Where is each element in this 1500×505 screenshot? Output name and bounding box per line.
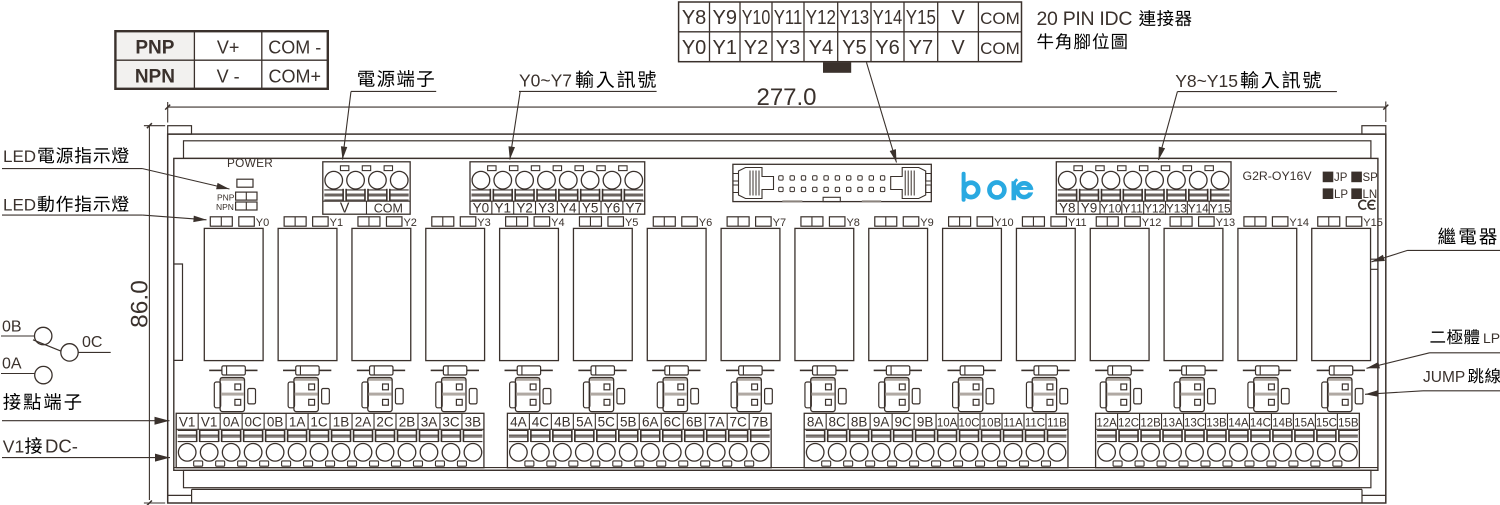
svg-text:86.0: 86.0: [127, 280, 154, 328]
svg-text:G2R-OY16V: G2R-OY16V: [1243, 169, 1313, 183]
svg-text:Y3: Y3: [477, 217, 490, 229]
svg-text:Y4: Y4: [809, 37, 833, 59]
svg-text:4C: 4C: [532, 414, 550, 429]
svg-text:NPN: NPN: [135, 67, 175, 88]
svg-text:2A: 2A: [355, 414, 372, 429]
svg-text:COM: COM: [374, 202, 403, 216]
svg-text:15B: 15B: [1338, 417, 1359, 429]
svg-text:Y6: Y6: [699, 217, 712, 229]
svg-text:9B: 9B: [917, 414, 934, 429]
svg-text:7A: 7A: [708, 414, 725, 429]
svg-text:8C: 8C: [829, 414, 847, 429]
svg-text:SP: SP: [1363, 172, 1379, 184]
svg-text:11A: 11A: [1003, 417, 1023, 429]
svg-text:7B: 7B: [752, 414, 769, 429]
svg-text:Y0: Y0: [256, 217, 269, 229]
svg-text:12A: 12A: [1096, 417, 1117, 429]
svg-text:Y5: Y5: [625, 217, 638, 229]
svg-text:Y12: Y12: [1144, 202, 1165, 216]
svg-text:Y9: Y9: [920, 217, 933, 229]
svg-text:LED: LED: [3, 147, 36, 166]
svg-text:V1: V1: [179, 414, 196, 429]
svg-text:Y8: Y8: [846, 217, 859, 229]
svg-text:Y1: Y1: [330, 217, 343, 229]
svg-text:5B: 5B: [620, 414, 637, 429]
svg-text:V+: V+: [217, 38, 240, 58]
svg-text:Y0: Y0: [473, 201, 490, 216]
svg-text:11C: 11C: [1025, 417, 1045, 429]
svg-text:10B: 10B: [981, 417, 1002, 429]
svg-text:V -: V -: [217, 67, 240, 87]
svg-text:Y15: Y15: [906, 7, 936, 29]
svg-text:Y3: Y3: [538, 201, 555, 216]
svg-text:10C: 10C: [958, 417, 979, 429]
svg-text:Y5: Y5: [582, 201, 599, 216]
svg-text:3B: 3B: [465, 414, 482, 429]
svg-text:Y12: Y12: [806, 7, 836, 29]
svg-text:1B: 1B: [333, 414, 350, 429]
svg-text:V: V: [340, 201, 350, 217]
svg-text:1C: 1C: [310, 414, 328, 429]
svg-text:15C: 15C: [1316, 417, 1337, 429]
svg-text:12B: 12B: [1140, 417, 1161, 429]
svg-text:Y10: Y10: [1100, 202, 1121, 216]
svg-text:Y0~Y7: Y0~Y7: [519, 71, 572, 91]
svg-text:5C: 5C: [598, 414, 616, 429]
svg-text:JP: JP: [1334, 172, 1348, 184]
svg-text:Y14: Y14: [873, 7, 903, 29]
svg-text:Y0: Y0: [682, 37, 706, 59]
svg-text:NPN: NPN: [216, 202, 234, 212]
svg-text:6B: 6B: [686, 414, 703, 429]
svg-text:14C: 14C: [1250, 417, 1271, 429]
svg-text:COM -: COM -: [268, 38, 321, 58]
svg-text:15A: 15A: [1294, 417, 1315, 429]
svg-text:Y6: Y6: [604, 201, 621, 216]
svg-text:Y14: Y14: [1289, 217, 1309, 229]
svg-text:Y13: Y13: [839, 7, 869, 29]
svg-text:3A: 3A: [421, 414, 438, 429]
svg-text:COM: COM: [980, 39, 1020, 58]
svg-text:8A: 8A: [807, 414, 824, 429]
svg-text:2C: 2C: [376, 414, 394, 429]
svg-text:Y4: Y4: [560, 201, 577, 216]
svg-text:Y11: Y11: [1123, 202, 1143, 216]
svg-text:LED: LED: [3, 196, 36, 215]
svg-text:Y9: Y9: [713, 7, 737, 29]
svg-text:Y10: Y10: [994, 217, 1014, 229]
svg-text:0C: 0C: [82, 334, 102, 351]
svg-text:Y11: Y11: [1068, 217, 1087, 229]
svg-text:Y7: Y7: [773, 217, 786, 229]
svg-text:Y14: Y14: [1188, 202, 1209, 216]
svg-text:Y12: Y12: [1142, 217, 1162, 229]
svg-text:Y10: Y10: [742, 7, 771, 29]
svg-text:Y8: Y8: [682, 7, 706, 29]
svg-text:COM: COM: [980, 9, 1020, 28]
svg-text:Y2: Y2: [744, 37, 768, 59]
svg-text:Y3: Y3: [776, 37, 800, 59]
svg-text:LN: LN: [1363, 189, 1378, 201]
svg-text:V: V: [951, 7, 965, 29]
svg-text:6A: 6A: [642, 414, 659, 429]
svg-text:Y4: Y4: [551, 217, 564, 229]
svg-text:V: V: [951, 37, 965, 59]
svg-text:11B: 11B: [1047, 417, 1067, 429]
svg-text:DC-: DC-: [45, 436, 78, 457]
svg-text:14A: 14A: [1228, 417, 1249, 429]
svg-text:Y8: Y8: [1059, 201, 1076, 216]
svg-text:Y2: Y2: [403, 217, 416, 229]
svg-text:Y9: Y9: [1081, 201, 1098, 216]
svg-text:8B: 8B: [851, 414, 868, 429]
svg-text:6C: 6C: [664, 414, 682, 429]
svg-text:LP: LP: [1334, 189, 1348, 201]
svg-text:COM+: COM+: [269, 67, 322, 87]
svg-text:12C: 12C: [1118, 417, 1139, 429]
svg-text:0B: 0B: [2, 319, 22, 336]
svg-text:Y11: Y11: [774, 7, 803, 29]
svg-text:5A: 5A: [576, 414, 593, 429]
svg-text:Y13: Y13: [1166, 202, 1187, 216]
svg-text:9C: 9C: [894, 414, 912, 429]
svg-text:JUMP: JUMP: [1423, 369, 1465, 386]
svg-text:V1: V1: [201, 414, 218, 429]
svg-text:Y15: Y15: [1210, 202, 1231, 216]
svg-text:Y13: Y13: [1216, 217, 1236, 229]
svg-text:4B: 4B: [554, 414, 571, 429]
svg-text:LP: LP: [1483, 330, 1500, 346]
svg-text:V1: V1: [3, 437, 24, 457]
svg-text:3C: 3C: [442, 414, 460, 429]
svg-text:Y5: Y5: [842, 37, 866, 59]
svg-text:Y2: Y2: [516, 201, 533, 216]
svg-text:PNP: PNP: [135, 38, 174, 59]
svg-text:9A: 9A: [873, 414, 890, 429]
svg-text:277.0: 277.0: [756, 84, 816, 111]
svg-text:2B: 2B: [399, 414, 416, 429]
svg-text:4A: 4A: [510, 414, 527, 429]
svg-text:Y8~Y15: Y8~Y15: [1175, 71, 1238, 91]
svg-text:Y15: Y15: [1363, 217, 1383, 229]
svg-text:POWER: POWER: [227, 156, 273, 170]
svg-text:Y1: Y1: [495, 201, 512, 216]
svg-text:0A: 0A: [2, 356, 22, 373]
svg-text:0B: 0B: [267, 414, 284, 429]
svg-text:Y7: Y7: [626, 201, 643, 216]
svg-text:20 PIN IDC: 20 PIN IDC: [1037, 8, 1133, 30]
svg-text:7C: 7C: [730, 414, 748, 429]
svg-text:1A: 1A: [289, 414, 306, 429]
svg-text:14B: 14B: [1272, 417, 1293, 429]
svg-text:10A: 10A: [937, 417, 958, 429]
svg-text:PNP: PNP: [217, 192, 235, 202]
svg-text:0A: 0A: [223, 414, 240, 429]
svg-text:Y6: Y6: [875, 37, 899, 59]
svg-text:13C: 13C: [1184, 417, 1205, 429]
svg-text:0C: 0C: [244, 414, 262, 429]
svg-text:13B: 13B: [1206, 417, 1227, 429]
svg-text:Y1: Y1: [713, 37, 737, 59]
svg-text:Y7: Y7: [909, 37, 933, 59]
svg-text:13A: 13A: [1162, 417, 1183, 429]
